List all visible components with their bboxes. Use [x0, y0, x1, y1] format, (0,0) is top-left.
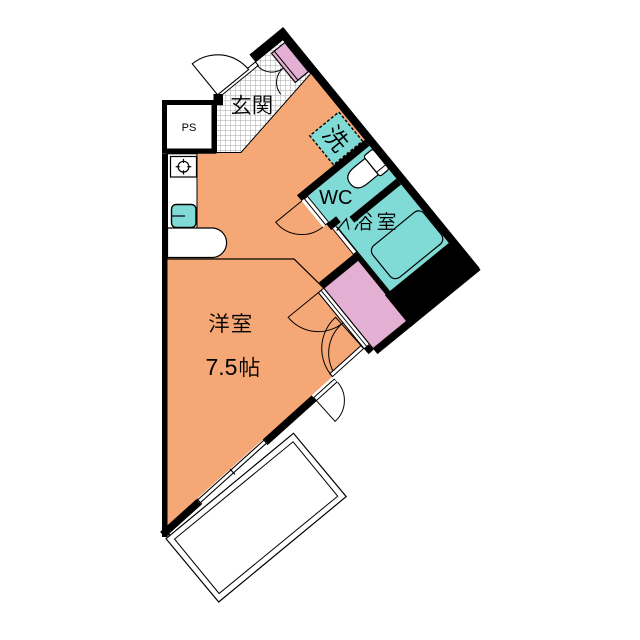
svg-text:PS: PS [182, 122, 197, 134]
svg-text:WC: WC [319, 187, 352, 209]
svg-text:7.5: 7.5 [206, 354, 238, 380]
